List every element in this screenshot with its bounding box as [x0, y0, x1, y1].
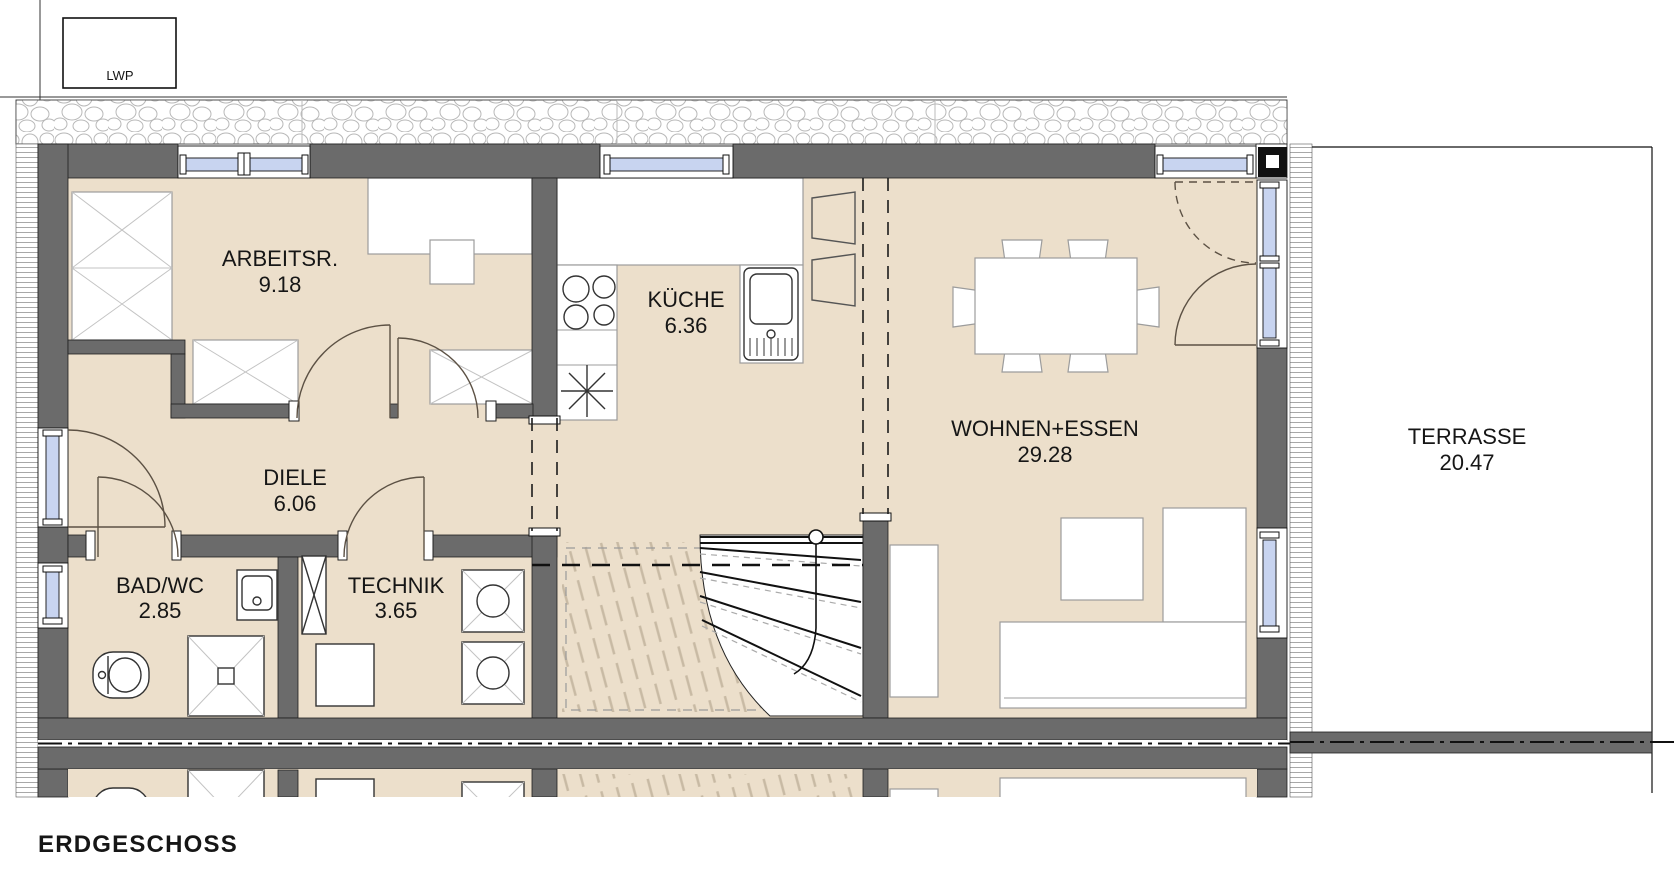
closet-left	[72, 192, 172, 340]
sofa-chaise	[1163, 508, 1246, 622]
dining-table	[975, 258, 1137, 354]
label-wohnen-essen: WOHNEN+ESSEN	[951, 416, 1139, 441]
floor-plan-page: LWP	[0, 0, 1679, 876]
technik-cabinet	[302, 556, 326, 634]
staircase	[562, 530, 863, 716]
washing-machine	[462, 570, 524, 632]
floor-plan-drawing: LWP	[0, 0, 1679, 876]
window-wohnen-top	[1155, 146, 1256, 178]
area-wohnen-essen: 29.28	[1017, 442, 1072, 467]
label-bad-wc: BAD/WC	[116, 573, 204, 598]
toilet	[93, 652, 149, 698]
area-terrasse: 20.47	[1439, 450, 1494, 475]
heat-pump-unit: LWP	[63, 18, 176, 88]
area-kueche: 6.36	[665, 313, 708, 338]
closet-right	[430, 350, 533, 404]
desk-chair	[430, 240, 474, 284]
dryer	[462, 642, 524, 704]
wall-stair-wohnen	[863, 520, 888, 718]
area-technik: 3.65	[375, 598, 418, 623]
kitchen-counter-top	[557, 178, 803, 265]
kitchen-sink	[744, 268, 798, 360]
party-wall	[38, 718, 1679, 769]
stair-newel	[809, 530, 823, 544]
area-diele: 6.06	[274, 491, 317, 516]
window-arbeitszimmer	[178, 146, 310, 178]
window-kueche	[600, 146, 733, 178]
wall-arbeitszimmer-kueche	[532, 178, 557, 418]
label-technik: TECHNIK	[348, 573, 445, 598]
washbasin	[237, 570, 277, 620]
label-arbeitszimmer: ARBEITSR.	[222, 246, 338, 271]
area-arbeitszimmer: 9.18	[259, 272, 302, 297]
label-diele: DIELE	[263, 465, 327, 490]
technik-box	[316, 644, 374, 706]
wall-bad-technik	[278, 557, 298, 718]
coffee-table	[1061, 518, 1143, 600]
tv-board	[890, 545, 938, 697]
insulation-strip-left	[16, 144, 38, 797]
page-title: ERDGESCHOSS	[38, 831, 238, 858]
neighbour-unit-mirror	[68, 769, 1257, 876]
dining-set	[953, 240, 1159, 372]
sofa-body	[1000, 622, 1246, 708]
area-bad-wc: 2.85	[139, 598, 182, 623]
shower	[188, 636, 264, 716]
window-bad	[38, 563, 68, 628]
wall-technik-stair	[532, 535, 557, 718]
window-wohnen-right	[1257, 528, 1287, 638]
gravel-band-top	[16, 100, 1287, 144]
label-terrasse: TERRASSE	[1408, 424, 1527, 449]
label-kueche: KÜCHE	[647, 287, 724, 312]
insulation-strip-right	[1290, 144, 1312, 797]
heat-pump-label: LWP	[106, 68, 133, 83]
closet-center	[193, 340, 298, 404]
